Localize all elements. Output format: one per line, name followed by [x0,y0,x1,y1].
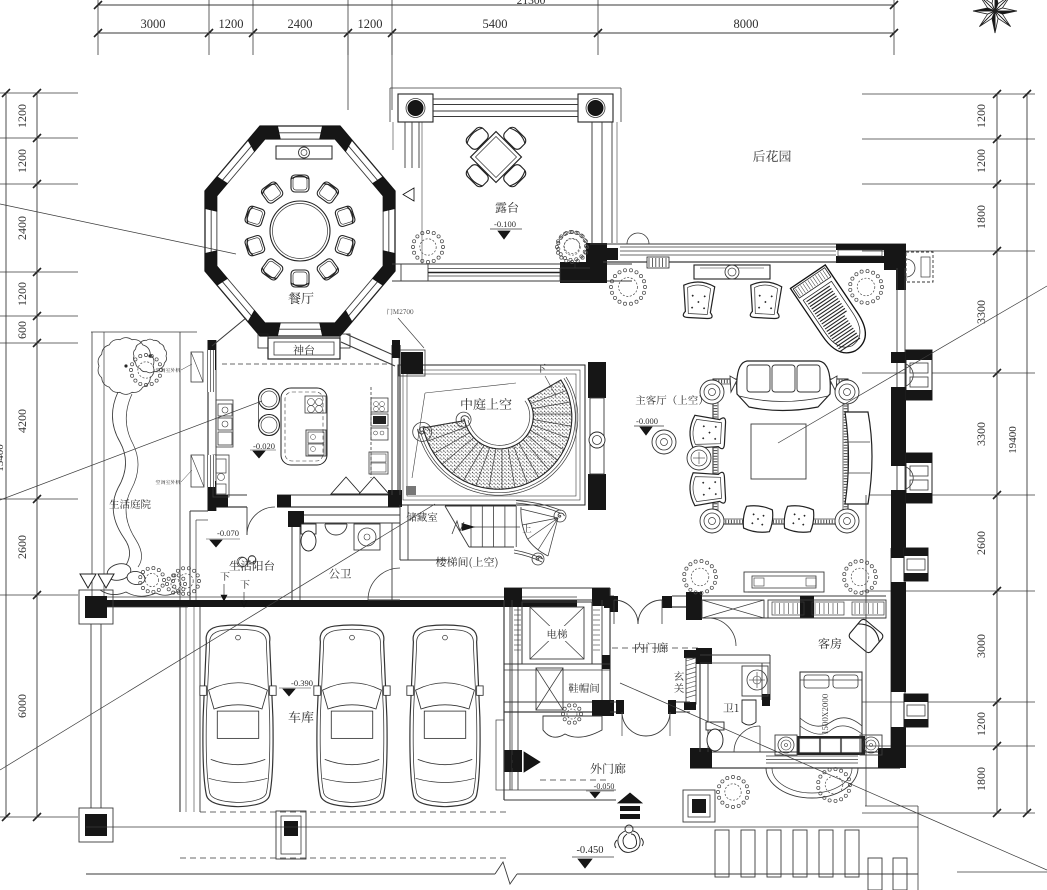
svg-text:600: 600 [15,321,29,339]
svg-text:1800: 1800 [974,205,988,229]
svg-text:-0.100: -0.100 [494,219,516,229]
svg-text:-0.390: -0.390 [291,678,313,688]
svg-text:-0.050: -0.050 [594,782,615,791]
svg-text:21300: 21300 [517,0,546,7]
svg-text:6000: 6000 [15,694,29,718]
svg-text:2400: 2400 [288,17,313,31]
svg-text:19400: 19400 [1007,426,1019,454]
svg-text:1200: 1200 [219,17,244,31]
svg-text:5400: 5400 [483,17,508,31]
svg-text:3300: 3300 [974,422,988,446]
svg-text:3000: 3000 [141,17,166,31]
svg-text:1200: 1200 [974,712,988,736]
svg-text:2600: 2600 [974,531,988,555]
svg-text:3000: 3000 [974,634,988,658]
svg-text:1200: 1200 [974,149,988,173]
svg-text:1200: 1200 [15,282,29,306]
svg-text:8000: 8000 [734,17,759,31]
svg-text:-0.450: -0.450 [576,845,603,856]
svg-text:2600: 2600 [15,535,29,559]
svg-text:1200: 1200 [15,104,29,128]
svg-text:4200: 4200 [15,409,29,433]
svg-text:1200: 1200 [15,149,29,173]
svg-text:1200: 1200 [358,17,383,31]
svg-text:-0.020: -0.020 [253,441,275,451]
svg-text:2400: 2400 [15,216,29,240]
svg-text:3300: 3300 [974,300,988,324]
svg-text:1200: 1200 [974,104,988,128]
svg-text:1800: 1800 [974,767,988,791]
svg-text:-0.070: -0.070 [217,528,239,538]
svg-text:-0.000: -0.000 [636,416,658,426]
svg-text:15400: 15400 [0,444,6,472]
